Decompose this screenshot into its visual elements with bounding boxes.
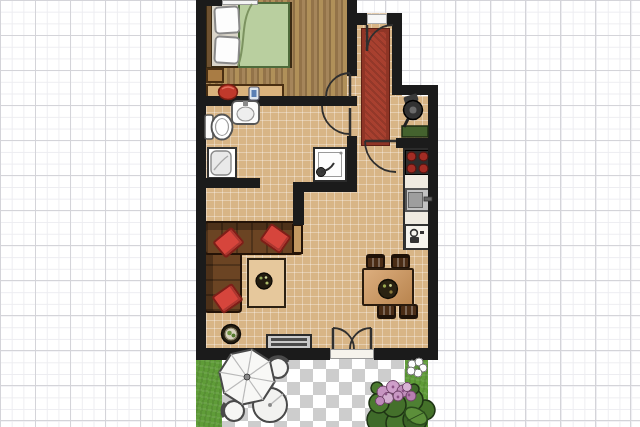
graph-paper-canvas <box>0 0 640 427</box>
kitchen-faucet <box>424 197 432 201</box>
fridge-icon <box>410 230 424 243</box>
white-flower[interactable] <box>407 358 427 377</box>
toilet[interactable] <box>205 115 233 140</box>
bathroom-door[interactable] <box>322 106 350 136</box>
dining-table-bowl <box>379 280 398 299</box>
patio-umbrella[interactable] <box>219 349 274 404</box>
shower-head <box>317 151 343 176</box>
vacuum-cleaner[interactable] <box>402 93 428 137</box>
flower-bush[interactable] <box>367 381 435 427</box>
overlay-graphics <box>0 0 640 427</box>
garden-french-doors[interactable] <box>333 328 371 349</box>
entry-door[interactable] <box>367 25 393 51</box>
stove-burners <box>407 152 428 173</box>
coffee-table-bowl <box>256 273 272 289</box>
washbasin[interactable] <box>232 101 259 124</box>
floor-plant[interactable] <box>222 325 241 344</box>
washing-machine-drum <box>211 151 231 175</box>
dresser-figurine[interactable] <box>249 87 259 100</box>
duvet-fold <box>238 4 252 66</box>
dresser-red-bowl[interactable] <box>219 85 238 100</box>
kitchen-door[interactable] <box>365 141 396 172</box>
bedroom-door[interactable] <box>326 73 350 97</box>
